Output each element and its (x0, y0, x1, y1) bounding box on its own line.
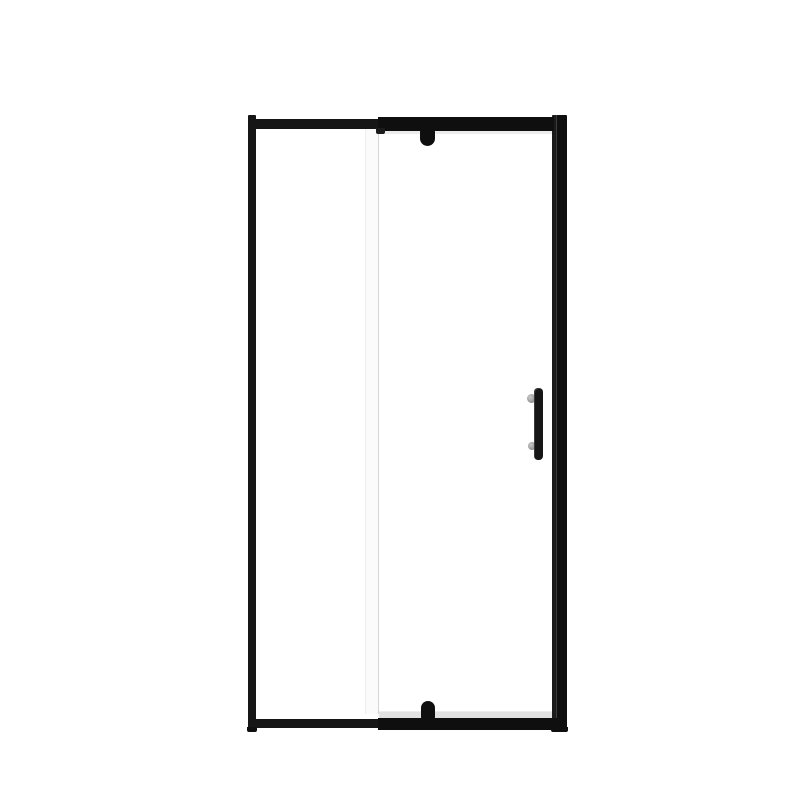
glass-top-reflection (380, 131, 552, 134)
fixed-panel-edge (365, 129, 379, 714)
top-rail-step-bracket (376, 128, 385, 134)
left-frame-jamb (248, 115, 256, 728)
bottom-frame-rail-right (378, 718, 560, 730)
right-frame-jamb (552, 115, 567, 728)
bottom-frame-rail-left (250, 719, 380, 728)
top-pivot-hinge (420, 129, 435, 146)
top-frame-rail-right (378, 117, 554, 131)
left-frame-foot (247, 727, 257, 732)
right-frame-foot (551, 727, 568, 732)
bottom-pivot-hinge (421, 701, 435, 719)
door-handle-bar (534, 388, 543, 460)
top-frame-rail-left (250, 119, 380, 129)
product-photo-canvas (0, 0, 800, 800)
